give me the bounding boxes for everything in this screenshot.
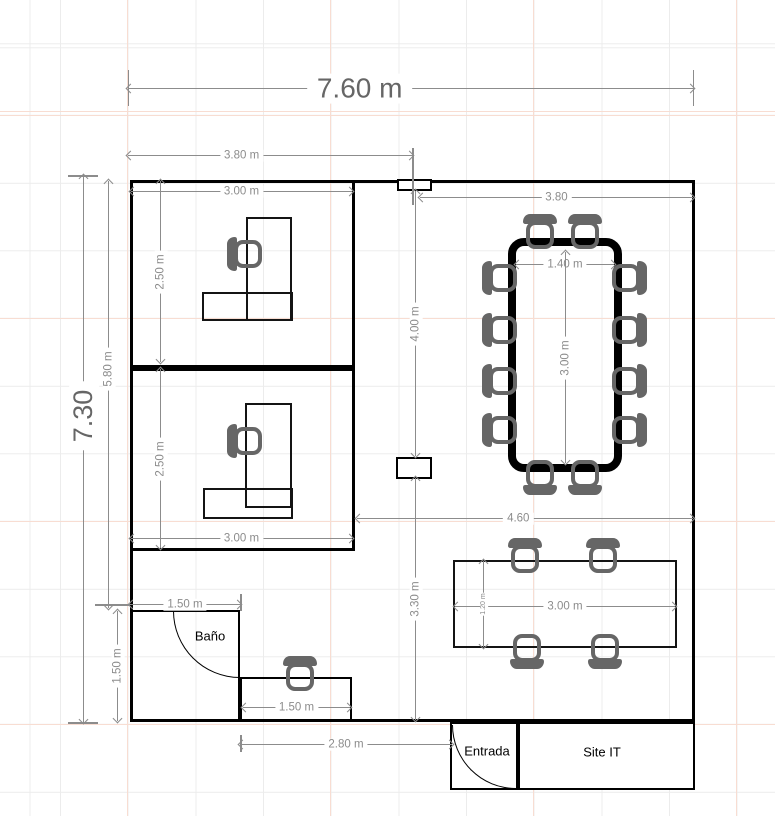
dim-bottom-clearance-width[interactable]: 2.80 m	[240, 744, 452, 745]
dim-corridor-lower-height[interactable]: 3.30 m	[415, 478, 416, 720]
dim-reception-desk-width[interactable]: 1.50 m	[243, 707, 350, 708]
chair-seat	[489, 264, 517, 292]
dim-office2-width[interactable]: 3.00 m	[131, 538, 352, 539]
dim-right-wing-width[interactable]: 3.80	[420, 197, 693, 198]
dim-total-width[interactable]: 7.60 m	[128, 88, 693, 89]
chair-seat	[589, 545, 617, 573]
floorplan-canvas: 7.60 m 3.80 m 3.80 3.00 m 2.50 m 2.50 m …	[0, 0, 775, 816]
conference-chair[interactable]	[611, 362, 647, 400]
chair-seat	[526, 460, 554, 488]
chair-seat	[234, 240, 262, 268]
chair-seat	[286, 663, 314, 691]
chair-seat	[591, 634, 619, 662]
chair-seat	[489, 316, 517, 344]
chair-seat	[489, 367, 517, 395]
chair-seat	[612, 316, 640, 344]
chair-seat	[612, 264, 640, 292]
conference-chair[interactable]	[611, 311, 647, 349]
conference-chair[interactable]	[482, 259, 518, 297]
conference-chair[interactable]	[611, 259, 647, 297]
dim-open-area-width[interactable]: 4.60	[357, 518, 693, 519]
chair-seat	[571, 221, 599, 249]
dim-left-wing-width[interactable]: 3.80 m	[128, 155, 412, 156]
conference-chair[interactable]	[566, 459, 604, 495]
dim-office1-width[interactable]: 3.00 m	[131, 191, 352, 192]
chair-seat	[511, 545, 539, 573]
meeting-chair[interactable]	[508, 633, 546, 669]
arrow-left-icon	[126, 150, 136, 160]
dim-office1-depth[interactable]: 2.50 m	[160, 181, 161, 362]
chair-seat	[513, 634, 541, 662]
office2-desk[interactable]	[203, 488, 293, 519]
dim-bano-height[interactable]: 1.50 m	[117, 611, 118, 721]
dim-offices-total-height[interactable]: 5.80 m	[108, 181, 109, 608]
site-it-label[interactable]: Site IT	[583, 745, 621, 760]
chair-seat	[526, 221, 554, 249]
dim-meeting-table-width[interactable]: 3.00 m	[455, 606, 675, 607]
arrow-down-icon	[112, 714, 122, 724]
chair-seat	[234, 427, 262, 455]
office1-desk[interactable]	[202, 292, 293, 321]
conference-chair[interactable]	[482, 362, 518, 400]
dim-conference-table-length[interactable]: 3.00 m	[565, 252, 566, 463]
meeting-chair[interactable]	[584, 538, 622, 574]
chair-seat	[489, 416, 517, 444]
chair-seat	[612, 367, 640, 395]
conference-chair[interactable]	[566, 214, 604, 250]
office-chair[interactable]	[227, 422, 263, 460]
dim-total-height[interactable]: 7.30	[83, 176, 84, 722]
dim-meeting-table-depth[interactable]: 1.20 m	[483, 561, 484, 647]
meeting-chair[interactable]	[506, 538, 544, 574]
dim-corridor-upper-height[interactable]: 4.00 m	[415, 191, 416, 456]
meeting-chair[interactable]	[586, 633, 624, 669]
arrow-up-icon	[112, 609, 122, 619]
office-chair[interactable]	[227, 235, 263, 273]
arrow-up-icon	[103, 179, 113, 189]
dim-bano-width[interactable]: 1.50 m	[130, 604, 240, 605]
conference-chair[interactable]	[611, 411, 647, 449]
chair-seat	[612, 416, 640, 444]
bano-label[interactable]: Baño	[195, 629, 225, 644]
conference-chair[interactable]	[521, 214, 559, 250]
conference-chair[interactable]	[482, 411, 518, 449]
chair-seat	[571, 460, 599, 488]
conference-chair[interactable]	[521, 459, 559, 495]
reception-chair[interactable]	[281, 656, 319, 692]
conference-chair[interactable]	[482, 311, 518, 349]
entrada-label[interactable]: Entrada	[464, 744, 510, 759]
arrow-down-icon	[103, 601, 113, 611]
dim-office2-depth[interactable]: 2.50 m	[160, 369, 161, 548]
